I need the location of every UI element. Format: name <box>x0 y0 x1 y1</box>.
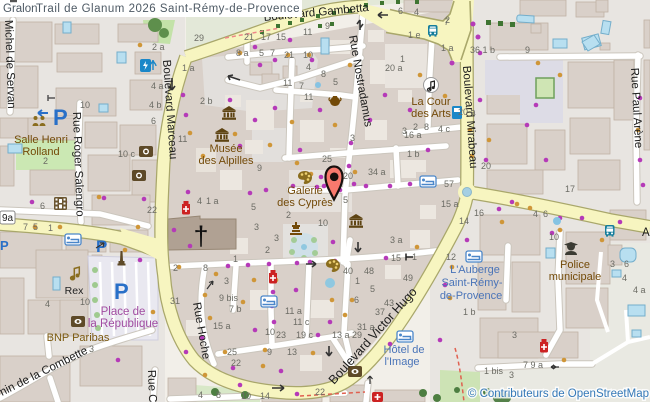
svg-text:34 a: 34 a <box>368 167 386 177</box>
svg-text:14: 14 <box>260 391 270 401</box>
svg-text:4 a: 4 a <box>151 81 164 91</box>
svg-text:5: 5 <box>343 195 348 205</box>
svg-text:8 a: 8 a <box>236 48 249 58</box>
svg-text:1 b: 1 b <box>407 149 420 159</box>
svg-text:10: 10 <box>549 232 559 242</box>
svg-text:2: 2 <box>265 245 270 255</box>
svg-text:15: 15 <box>391 253 401 263</box>
svg-text:1: 1 <box>48 223 53 233</box>
svg-text:22: 22 <box>315 387 325 397</box>
svg-text:37: 37 <box>375 307 385 317</box>
svg-text:4: 4 <box>197 196 202 206</box>
svg-text:4: 4 <box>533 209 538 219</box>
svg-text:8: 8 <box>424 122 429 132</box>
svg-text:40: 40 <box>343 266 353 276</box>
svg-text:des Arts: des Arts <box>411 108 451 120</box>
svg-text:3: 3 <box>512 330 517 340</box>
svg-text:6: 6 <box>354 295 359 305</box>
svg-text:11 c: 11 c <box>293 317 310 327</box>
svg-text:P: P <box>0 238 9 253</box>
svg-text:La Cour: La Cour <box>411 96 450 108</box>
svg-text:Place de: Place de <box>101 306 146 318</box>
svg-text:Rex: Rex <box>65 285 84 297</box>
svg-text:10: 10 <box>241 391 251 401</box>
svg-text:†: † <box>193 221 208 251</box>
svg-text:20 a: 20 a <box>458 107 476 117</box>
svg-text:Saint-Rémy-: Saint-Rémy- <box>441 277 502 289</box>
svg-text:10: 10 <box>80 297 90 307</box>
svg-text:6: 6 <box>151 116 156 126</box>
svg-text:6: 6 <box>543 209 548 219</box>
svg-text:7 9 a: 7 9 a <box>523 360 543 370</box>
svg-text:20: 20 <box>481 161 491 171</box>
svg-text:7: 7 <box>23 222 28 232</box>
svg-text:29: 29 <box>352 330 362 340</box>
svg-text:25: 25 <box>322 154 332 164</box>
svg-text:8: 8 <box>321 69 326 79</box>
svg-text:9: 9 <box>257 163 262 173</box>
svg-text:2: 2 <box>173 263 178 273</box>
svg-text:19 c: 19 c <box>296 330 314 340</box>
svg-text:3: 3 <box>89 344 94 354</box>
svg-text:5: 5 <box>333 77 338 87</box>
svg-text:P: P <box>53 105 68 130</box>
svg-text:1 bis: 1 bis <box>484 366 504 376</box>
svg-text:17: 17 <box>565 184 575 194</box>
svg-text:4: 4 <box>45 299 50 309</box>
svg-text:7: 7 <box>270 48 275 58</box>
svg-text:29: 29 <box>194 33 204 43</box>
svg-text:3: 3 <box>254 222 259 232</box>
svg-text:15 a: 15 a <box>213 321 231 331</box>
svg-text:6: 6 <box>624 259 629 269</box>
svg-text:5: 5 <box>259 48 264 58</box>
svg-text:7: 7 <box>299 81 304 91</box>
svg-text:10 c: 10 c <box>118 149 136 159</box>
svg-text:4: 4 <box>306 62 311 72</box>
svg-text:13 a: 13 a <box>332 330 350 340</box>
svg-text:Salle Henri: Salle Henri <box>14 134 68 146</box>
svg-text:16: 16 <box>474 208 484 218</box>
svg-text:la République: la République <box>88 318 158 330</box>
svg-text:57: 57 <box>444 179 454 189</box>
svg-text:3: 3 <box>509 370 514 380</box>
svg-text:31: 31 <box>170 296 180 306</box>
svg-text:11: 11 <box>283 78 292 88</box>
svg-text:des Cyprès: des Cyprès <box>277 197 333 209</box>
svg-text:10: 10 <box>318 218 328 228</box>
svg-text:21: 21 <box>244 32 254 42</box>
svg-text:1 a: 1 a <box>182 63 195 73</box>
svg-text:10: 10 <box>265 327 275 337</box>
svg-text:© Contributeurs de OpenStreetM: © Contributeurs de OpenStreetMap <box>468 388 649 400</box>
svg-text:9: 9 <box>267 347 272 357</box>
svg-text:5: 5 <box>33 222 38 232</box>
svg-text:4 a: 4 a <box>633 285 646 295</box>
svg-text:L'Auberge: L'Auberge <box>450 264 500 276</box>
svg-text:2: 2 <box>286 210 291 220</box>
svg-text:Rue Cyprès: Rue Cyprès <box>145 370 159 402</box>
svg-text:P: P <box>114 279 129 304</box>
svg-text:8: 8 <box>216 390 221 400</box>
svg-text:2: 2 <box>43 156 48 166</box>
svg-text:3: 3 <box>610 259 615 269</box>
svg-text:1: 1 <box>400 54 405 64</box>
svg-text:8: 8 <box>203 263 208 273</box>
svg-text:2 b: 2 b <box>200 96 213 106</box>
svg-text:1 b: 1 b <box>463 307 476 317</box>
svg-text:1 e: 1 e <box>408 30 421 40</box>
svg-text:3: 3 <box>274 233 279 243</box>
svg-text:4: 4 <box>414 7 419 17</box>
svg-text:20 a: 20 a <box>385 63 403 73</box>
svg-text:Galerie: Galerie <box>287 185 322 197</box>
svg-text:21: 21 <box>284 50 294 60</box>
svg-text:23: 23 <box>276 330 286 340</box>
svg-text:10: 10 <box>303 50 313 60</box>
svg-text:l'Image: l'Image <box>384 356 419 368</box>
svg-text:11: 11 <box>304 92 313 102</box>
svg-text:municipale: municipale <box>549 271 602 283</box>
svg-text:10: 10 <box>80 100 90 110</box>
svg-text:1 a: 1 a <box>206 196 219 206</box>
svg-text:9: 9 <box>325 21 330 31</box>
svg-text:17: 17 <box>261 32 271 42</box>
svg-text:BNP Paribas: BNP Paribas <box>47 332 110 344</box>
svg-text:A: A <box>642 227 650 239</box>
svg-text:9a: 9a <box>2 213 14 224</box>
svg-text:1: 1 <box>412 252 417 262</box>
svg-text:6: 6 <box>398 6 403 16</box>
svg-text:4 c: 4 c <box>438 124 451 134</box>
svg-text:14: 14 <box>459 216 469 226</box>
svg-text:22: 22 <box>231 358 241 368</box>
svg-text:Rolland: Rolland <box>22 146 59 158</box>
svg-text:4: 4 <box>622 273 627 283</box>
svg-text:des Alpilles: des Alpilles <box>198 155 254 167</box>
svg-text:6: 6 <box>40 201 45 211</box>
svg-text:2 a: 2 a <box>152 42 165 52</box>
svg-text:12: 12 <box>446 252 456 262</box>
svg-text:Hôtel de: Hôtel de <box>384 344 425 356</box>
svg-text:3 a: 3 a <box>390 235 403 245</box>
svg-text:Trail de Glanum 2026 Saint-Rém: Trail de Glanum 2026 Saint-Rémy-de-Prove… <box>36 3 300 15</box>
svg-text:de-Provence: de-Provence <box>440 290 502 302</box>
svg-text:48: 48 <box>364 266 374 276</box>
svg-text:22: 22 <box>147 205 157 215</box>
svg-text:9: 9 <box>525 45 530 55</box>
svg-text:11: 11 <box>303 27 312 37</box>
svg-text:5: 5 <box>370 284 375 294</box>
svg-text:36 1 b: 36 1 b <box>470 45 495 55</box>
svg-text:2: 2 <box>445 15 450 25</box>
svg-text:Musée: Musée <box>209 143 242 155</box>
svg-text:16 a: 16 a <box>404 130 422 140</box>
svg-text:11 a: 11 a <box>285 306 302 316</box>
svg-text:25: 25 <box>227 347 237 357</box>
svg-text:1: 1 <box>355 276 360 286</box>
svg-text:49: 49 <box>403 273 413 283</box>
svg-text:15: 15 <box>276 32 286 42</box>
svg-text:Gralon: Gralon <box>3 3 38 15</box>
svg-text:15 a: 15 a <box>441 199 459 209</box>
svg-text:9 bis: 9 bis <box>219 293 239 303</box>
svg-text:20: 20 <box>343 171 353 181</box>
svg-text:5: 5 <box>251 202 256 212</box>
svg-text:3: 3 <box>224 276 229 286</box>
svg-text:7 b: 7 b <box>229 304 242 314</box>
svg-text:1 a: 1 a <box>441 43 454 53</box>
svg-text:Police: Police <box>560 259 590 271</box>
svg-text:1: 1 <box>233 254 238 264</box>
svg-text:43: 43 <box>384 298 394 308</box>
svg-text:3: 3 <box>350 133 355 143</box>
svg-text:4: 4 <box>198 390 203 400</box>
svg-text:4 b: 4 b <box>149 100 162 110</box>
svg-text:11: 11 <box>178 134 187 144</box>
svg-text:13: 13 <box>287 347 297 357</box>
